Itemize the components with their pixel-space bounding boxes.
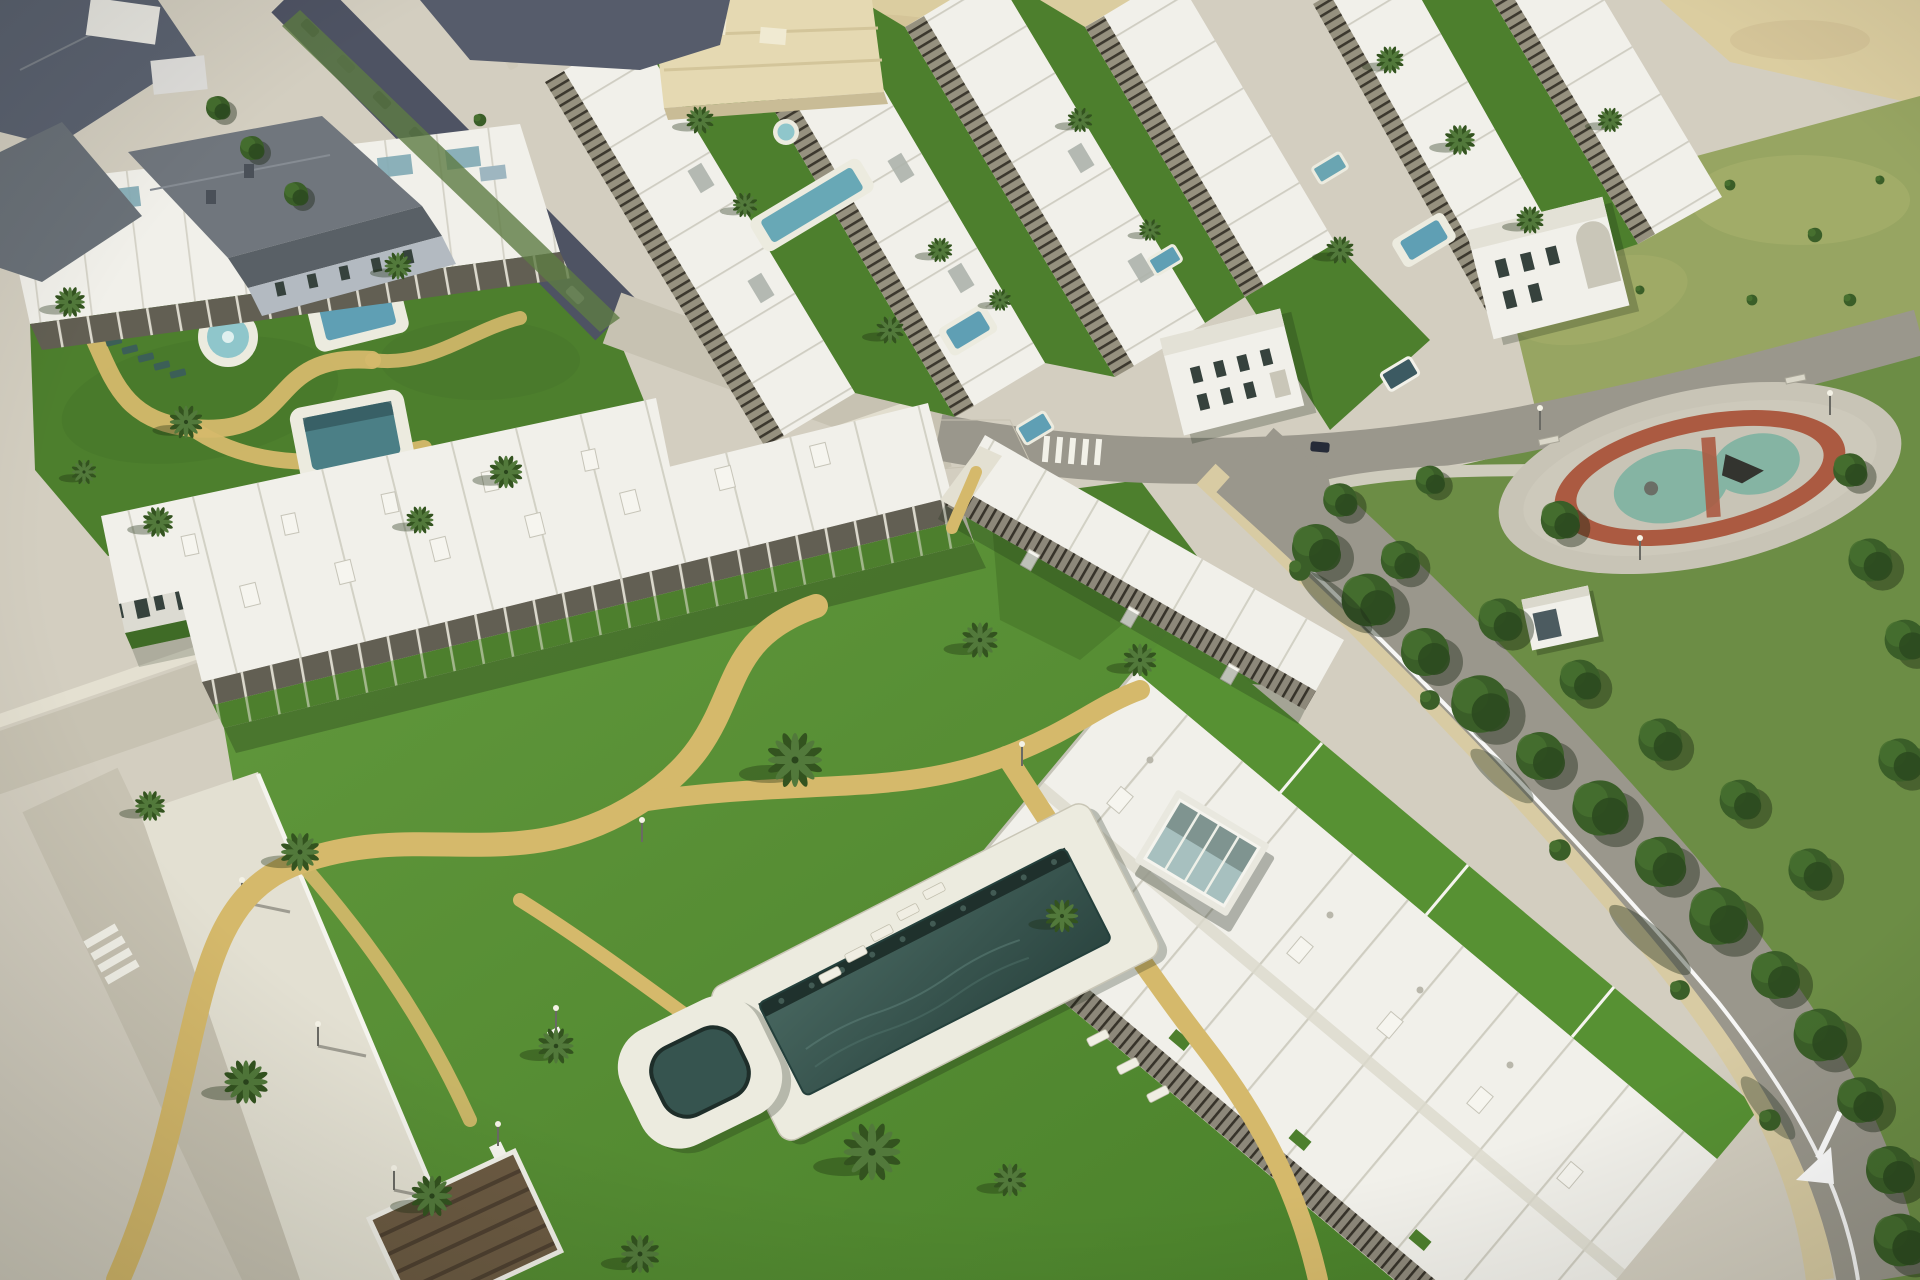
render-canvas bbox=[0, 0, 1920, 1280]
vignette-overlay bbox=[0, 0, 1920, 1280]
aerial-render-image bbox=[0, 0, 1920, 1280]
